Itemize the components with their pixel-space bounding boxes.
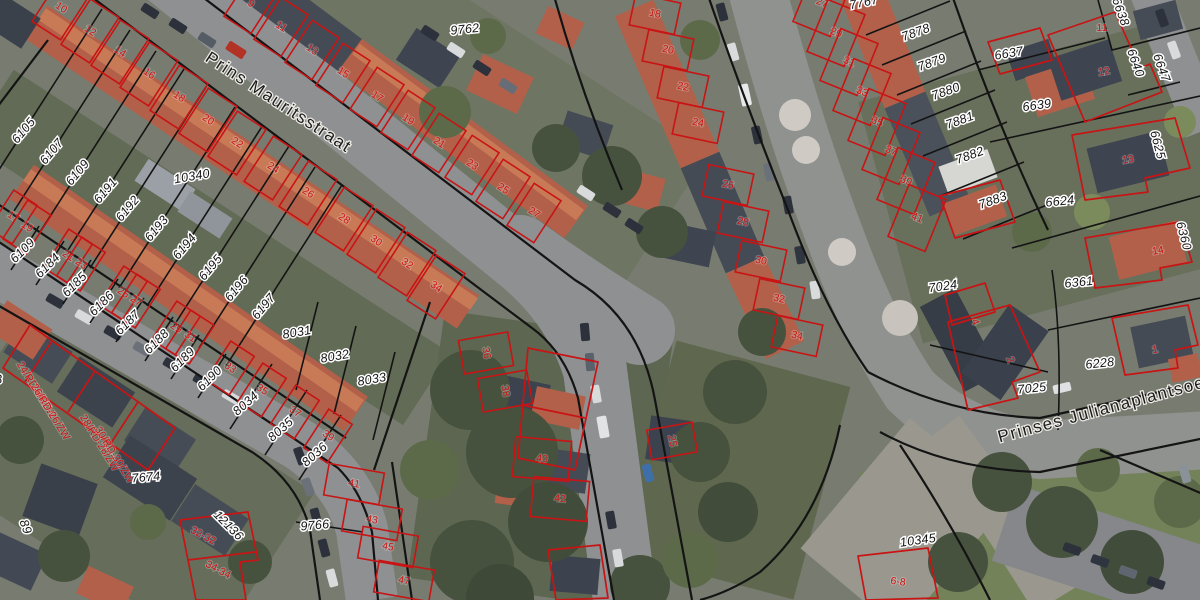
parcel-label-text: 9766 [300, 517, 330, 533]
tree [1026, 486, 1098, 558]
tree [972, 452, 1032, 512]
house-number: 14 [1151, 244, 1165, 258]
house-number-text: 13 [1121, 153, 1135, 167]
tree [698, 482, 758, 542]
house-number-text: 11 [1097, 22, 1108, 34]
blossom-tree [828, 238, 856, 266]
tree [532, 124, 580, 172]
house-number-text: 45 [381, 540, 395, 554]
house-number-text: 12 [1097, 65, 1111, 79]
house-number-text: 25 [665, 434, 679, 448]
house-number: 11 [1097, 22, 1108, 34]
house-number-text: 47 [397, 574, 411, 588]
house-number-text: 36 [479, 346, 493, 360]
tree [130, 504, 166, 540]
house-number: 12 [1097, 65, 1111, 79]
house-number-text: 38 [498, 384, 512, 398]
tree [670, 422, 730, 482]
tree [400, 440, 460, 500]
tree [662, 532, 718, 588]
house-number-text: 41 [347, 477, 361, 491]
tree [228, 540, 272, 584]
blossom-tree [882, 300, 918, 336]
map-viewport[interactable]: 1012141618202224262830323491113151719212… [0, 0, 1200, 600]
parcel-label-text: 7674 [131, 469, 161, 485]
blossom-tree [792, 136, 820, 164]
parcel-label: 7674 [131, 469, 161, 485]
aerial-cadastral-map[interactable]: 1012141618202224262830323491113151719212… [0, 0, 1200, 600]
tree [680, 20, 720, 60]
tree [419, 86, 471, 138]
tree [636, 206, 688, 258]
parcel-label: 9766 [300, 517, 330, 533]
car [580, 323, 591, 342]
house-number: 13 [1121, 153, 1135, 167]
blossom-tree [779, 99, 811, 131]
house-number-text: 6-8 [890, 575, 907, 589]
house-number-text: 43 [365, 513, 379, 527]
house-number: 6-8 [890, 575, 907, 589]
house-number-text: 40 [536, 452, 549, 465]
house-number-text: 42 [554, 492, 567, 505]
house-number-text: 14 [1151, 244, 1165, 258]
building [550, 555, 601, 595]
tree [38, 530, 90, 582]
tree [703, 360, 767, 424]
